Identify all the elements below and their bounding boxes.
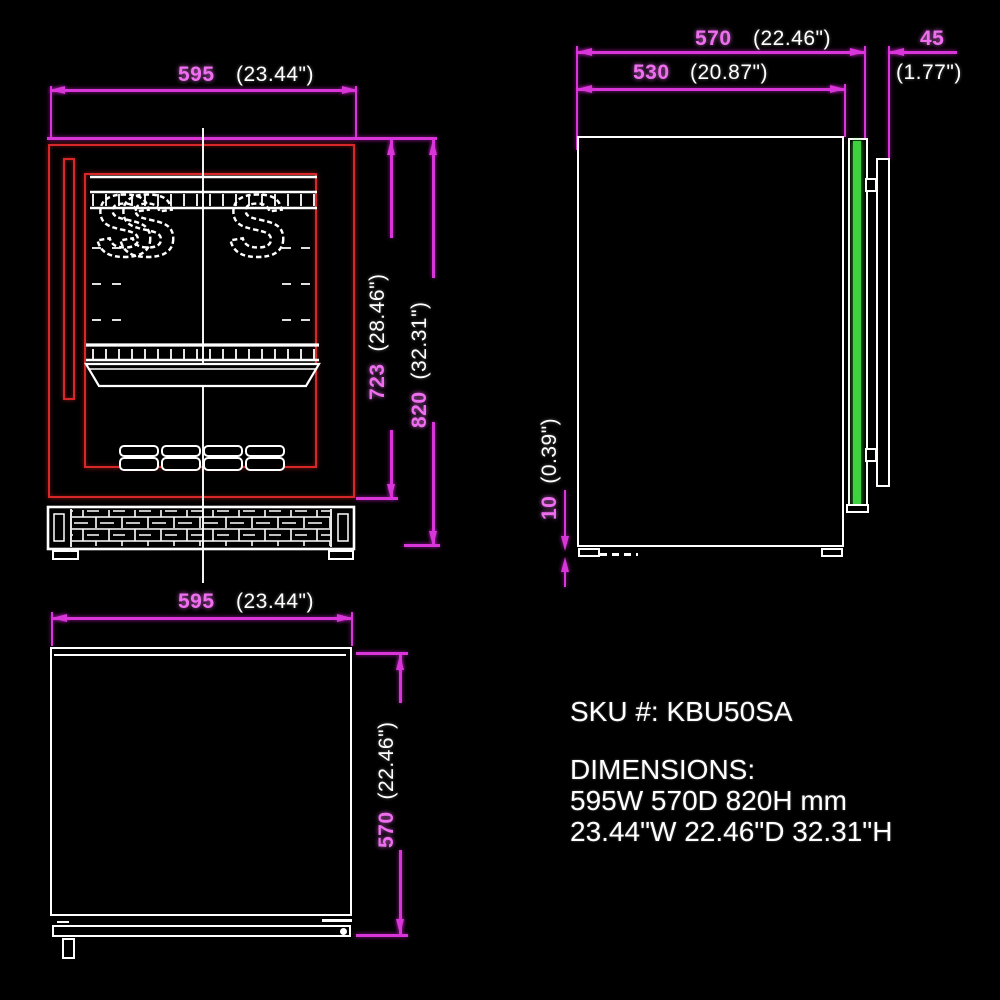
side-foot-height-in: (0.39") bbox=[538, 418, 562, 484]
front-door-height-in: (28.46") bbox=[366, 273, 390, 351]
front-grille-bricks bbox=[72, 510, 330, 546]
side-ext-door-front bbox=[864, 46, 866, 142]
meat-hook-icon: S bbox=[228, 176, 287, 275]
top-width-dim-line bbox=[52, 617, 352, 620]
top-door-handle bbox=[62, 938, 75, 959]
front-door-height-mm: 723 bbox=[366, 363, 390, 400]
side-ext-handle-front bbox=[888, 46, 890, 159]
top-depth-arrow-top bbox=[396, 655, 404, 670]
side-foot-front bbox=[821, 548, 843, 557]
front-width-dim-mm: 595 bbox=[178, 64, 215, 86]
front-interior-art: S S S bbox=[40, 130, 460, 570]
side-body-depth-in: (20.87") bbox=[690, 62, 768, 84]
top-door-panel bbox=[52, 925, 351, 937]
front-total-height-dim-label: 820 (32.31") bbox=[408, 301, 432, 428]
side-handle-bar bbox=[876, 158, 890, 487]
top-depth-ext-bottom bbox=[356, 934, 408, 937]
wood-blocks bbox=[120, 446, 284, 470]
side-body-depth-arrow-right bbox=[830, 85, 845, 93]
side-handle-standoff-top bbox=[865, 178, 877, 192]
top-width-arrow-right bbox=[337, 614, 352, 622]
top-depth-mm: 570 bbox=[375, 811, 399, 848]
side-body-depth-mm: 530 bbox=[633, 62, 670, 84]
front-width-dim-in: (23.44") bbox=[236, 64, 314, 86]
side-ext-back bbox=[576, 46, 578, 150]
side-door-glass-strip bbox=[853, 141, 861, 506]
top-depth-dim-label: 570 (22.46") bbox=[375, 721, 399, 848]
side-handle-depth-mm: 45 bbox=[920, 28, 944, 50]
sku-label: SKU #: KBU50SA bbox=[570, 696, 793, 728]
front-door-height-ext bbox=[356, 497, 398, 500]
side-handle-standoff-bottom bbox=[865, 448, 877, 462]
front-grille-cap-left bbox=[54, 514, 64, 541]
side-cabinet-body bbox=[577, 136, 844, 547]
front-grille-cap-right bbox=[338, 514, 348, 541]
front-total-height-line-bottom bbox=[432, 422, 435, 546]
front-door-height-dim-label: 723 (28.46") bbox=[366, 273, 390, 400]
top-depth-arrow-bottom bbox=[396, 919, 404, 934]
side-foot-height-dim-label: 10 (0.39") bbox=[538, 418, 562, 520]
front-foot-right bbox=[329, 551, 353, 559]
side-foot-height-arrow-bottom bbox=[561, 557, 569, 572]
top-cabinet-inner-top-line bbox=[54, 654, 346, 656]
side-total-depth-in: (22.46") bbox=[753, 28, 831, 50]
front-door-height-arrow-top bbox=[387, 140, 395, 155]
side-foot-height-line-top bbox=[564, 490, 566, 536]
front-total-height-arrow-top bbox=[429, 140, 437, 155]
technical-drawing-canvas: 595 (23.44") bbox=[0, 0, 1000, 1000]
dimensions-heading: DIMENSIONS: bbox=[570, 754, 755, 786]
side-floor-dashes bbox=[600, 553, 638, 556]
side-total-depth-arrow-left bbox=[577, 48, 592, 56]
side-handle-depth-arrow bbox=[889, 48, 904, 56]
top-hinge-pin bbox=[340, 928, 347, 935]
top-cabinet-outline bbox=[50, 647, 352, 916]
side-door-bottom-cap bbox=[846, 504, 869, 513]
side-handle-depth-in: (1.77") bbox=[896, 62, 962, 84]
side-total-depth-mm: 570 bbox=[695, 28, 732, 50]
side-foot-height-arrow-top bbox=[561, 536, 569, 551]
side-total-depth-dim-line bbox=[577, 51, 865, 54]
meat-hook-icon: S bbox=[118, 176, 177, 275]
side-foot-back bbox=[578, 548, 600, 557]
side-foot-height-mm: 10 bbox=[538, 496, 562, 520]
top-width-dim-mm: 595 bbox=[178, 591, 215, 613]
top-door-left-step bbox=[57, 921, 69, 923]
top-width-arrow-left bbox=[52, 614, 67, 622]
side-body-depth-dim-line bbox=[577, 88, 845, 91]
front-total-height-ext bbox=[404, 544, 440, 547]
front-width-arrow-left bbox=[50, 86, 65, 94]
front-total-height-mm: 820 bbox=[408, 391, 432, 428]
top-width-dim-in: (23.44") bbox=[236, 591, 314, 613]
dimensions-metric: 595W 570D 820H mm bbox=[570, 785, 847, 817]
dimensions-imperial: 23.44"W 22.46"D 32.31"H bbox=[570, 816, 892, 848]
front-shelf-hatch bbox=[88, 349, 316, 359]
front-drip-tray bbox=[86, 364, 319, 386]
top-depth-in: (22.46") bbox=[375, 721, 399, 799]
front-total-height-in: (32.31") bbox=[408, 301, 432, 379]
side-total-depth-arrow-right bbox=[850, 48, 865, 56]
side-foot-height-line-bottom bbox=[564, 572, 566, 587]
side-body-depth-arrow-left bbox=[577, 85, 592, 93]
front-width-dim-line bbox=[50, 89, 357, 92]
front-foot-left bbox=[53, 551, 78, 559]
top-hinge-plate bbox=[322, 919, 352, 922]
front-total-height-line-top bbox=[432, 140, 435, 278]
front-width-arrow-right bbox=[342, 86, 357, 94]
